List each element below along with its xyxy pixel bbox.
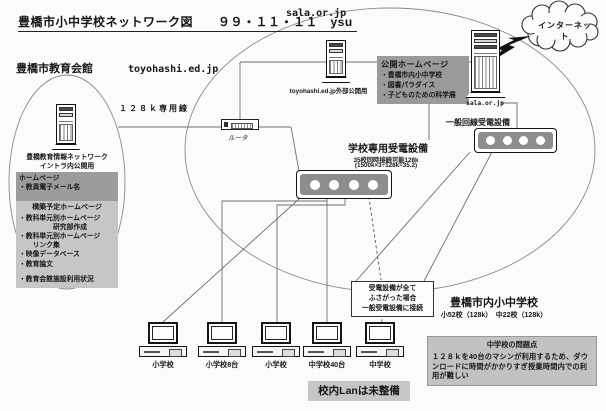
desktop-computer-icon — [207, 322, 237, 344]
modem-port — [368, 180, 378, 190]
planned-item: ・教科単元別ホームページ — [19, 214, 115, 223]
school-modem-bank — [296, 170, 392, 199]
schools-title: 豊橋市内小中学校 — [438, 294, 550, 310]
school-computer: 中学校40台 — [298, 322, 356, 370]
toyohashi-server-label: toyohashi.ed.jp外部公開用 — [281, 86, 376, 95]
planned-item: リンク集 — [19, 241, 115, 250]
education-hall-title: 豊橋市教育会館 — [16, 60, 93, 76]
toyohashi-domain-label: toyohashi.ed.jp — [128, 64, 218, 75]
public-homepage-item: ・図書パラダイス — [381, 81, 465, 91]
fallback-line: 受電設備が全て — [352, 284, 433, 294]
modem-port — [329, 180, 339, 190]
planned-header: 構築予定ホームページ — [19, 203, 115, 212]
public-homepage-item: ・子どものための科学展 — [381, 91, 465, 101]
fallback-line: 一般受電設備に接続 — [352, 304, 433, 314]
computer-label: 中学校40台 — [298, 360, 356, 370]
hall-server-note: イントラ内公開用 — [8, 160, 126, 170]
problem-text: １２８ｋを40台のマシンが利用するため、ダウンロードに時間がかかりすぎ授業時間内… — [432, 352, 592, 381]
public-homepage-title: 公開ホームページ — [381, 59, 465, 70]
general-modem-bank — [474, 128, 557, 153]
fallback-line: ふさがった場合 — [352, 294, 433, 304]
general-modem-title: 一般回線受電設備 — [446, 117, 510, 128]
planned-item: ・教科単元別ホームページ — [19, 232, 115, 241]
computer-label: 小学校 — [134, 360, 192, 370]
internet-label: インターネット — [534, 20, 596, 42]
hall-homepage-box: ホームページ ・教員電子メール名 構築予定ホームページ ・教科単元別ホームページ… — [16, 172, 118, 288]
fallback-callout: 受電設備が全て ふさがった場合 一般受電設備に接続 — [351, 281, 434, 317]
network-diagram: 豊橋市小中学校ネットワーク図 ９９・１１・１１ ysu sala.or.jp t… — [0, 0, 606, 411]
school-computer: 中学校 — [351, 322, 409, 370]
desktop-computer-icon — [312, 322, 342, 344]
homepage-header: ホームページ — [19, 174, 115, 183]
router-label: ルータ — [228, 132, 248, 142]
school-computer: 小学校 — [247, 322, 305, 370]
desktop-computer-icon — [148, 322, 178, 344]
public-homepage-item: ・豊橋市内小中学校 — [381, 71, 465, 81]
modem-port — [349, 180, 359, 190]
desktop-computer-icon — [365, 322, 395, 344]
problem-title: 中学校の問題点 — [432, 340, 592, 350]
computer-label: 中学校 — [351, 360, 409, 370]
modem-port — [536, 136, 545, 145]
school-computer: 小学校8台 — [193, 322, 251, 370]
school-lan-note: 校内Lanは未整備 — [308, 381, 410, 401]
school-computer: 小学校 — [134, 322, 192, 370]
sala-server-icon — [471, 30, 500, 98]
homepage-item: ・教員電子メール名 — [19, 183, 115, 192]
sala-server-label: sala.or.jp — [462, 100, 508, 107]
modem-port — [503, 136, 512, 145]
modem-port — [519, 136, 528, 145]
toyohashi-server-icon — [326, 40, 346, 83]
school-modem-formula: (1500k×3÷128k=35.2) — [342, 162, 430, 169]
schools-counts: 小52校（128k） 中22校（128k） — [432, 310, 556, 320]
router-icon — [221, 119, 259, 130]
problem-box: 中学校の問題点 １２８ｋを40台のマシンが利用するため、ダウンロードに時間がかか… — [427, 336, 597, 386]
computer-label: 小学校 — [247, 360, 305, 370]
school-modem-title: 学校専用受電設備 — [348, 140, 428, 155]
modem-port — [310, 180, 320, 190]
planned-item: ・映像データベース — [19, 250, 115, 259]
leased-line-label: １２８ｋ専用線 — [119, 103, 189, 114]
computer-label: 小学校8台 — [193, 360, 251, 370]
planned-item: 研究部作成 — [19, 223, 115, 232]
planned-item: ・教育論文 — [19, 260, 115, 269]
hall-server-icon — [56, 104, 76, 150]
planned-item: ・教育会館施設利用状況 — [19, 275, 115, 284]
desktop-computer-icon — [261, 322, 291, 344]
public-homepage-box: 公開ホームページ ・豊橋市内小中学校 ・図書パラダイス ・子どものための科学展 — [377, 56, 469, 104]
sala-domain-label: sala.or.jp — [286, 8, 346, 19]
modem-port — [486, 136, 495, 145]
